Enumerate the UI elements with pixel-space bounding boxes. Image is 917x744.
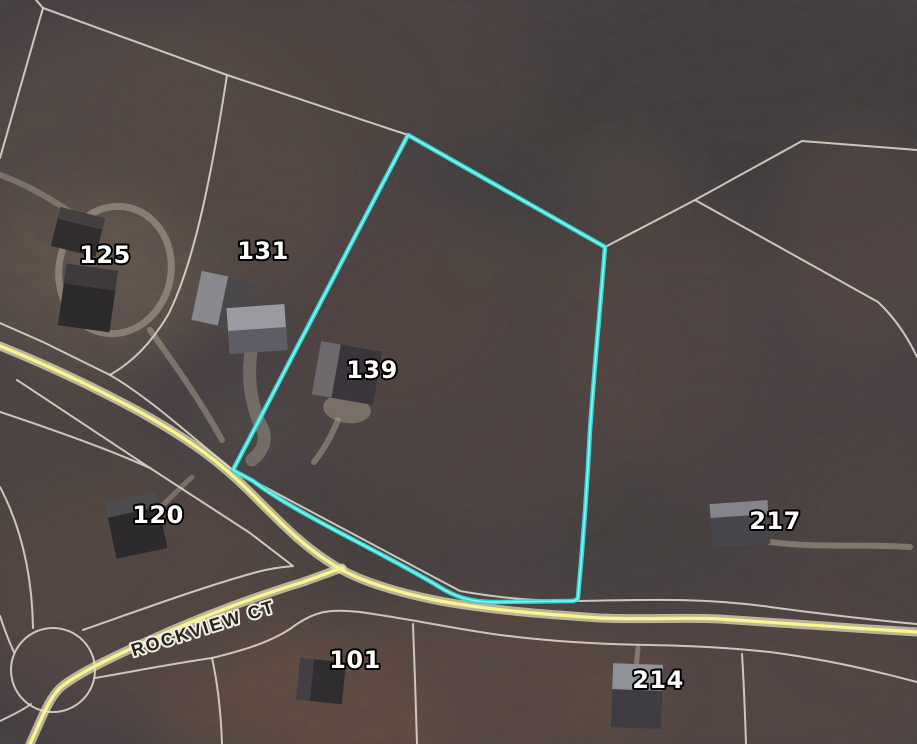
map-viewport: 125 131 139 120 217 101 214 ROCKVIEW CT <box>0 0 917 744</box>
parcel-label-120[interactable]: 120 <box>132 501 184 529</box>
parcel-label-139[interactable]: 139 <box>346 356 398 384</box>
parcel-label-217[interactable]: 217 <box>749 507 801 535</box>
house-131-b <box>226 304 287 354</box>
parcel-label-214[interactable]: 214 <box>632 666 684 694</box>
house-125-b <box>58 264 118 333</box>
aerial-imagery <box>0 0 917 744</box>
parcel-label-131[interactable]: 131 <box>237 237 289 265</box>
grain-texture <box>0 0 917 744</box>
aerial-map: 125 131 139 120 217 101 214 ROCKVIEW CT <box>0 0 917 744</box>
parcel-label-101[interactable]: 101 <box>329 646 381 674</box>
parcel-label-125[interactable]: 125 <box>79 241 131 269</box>
